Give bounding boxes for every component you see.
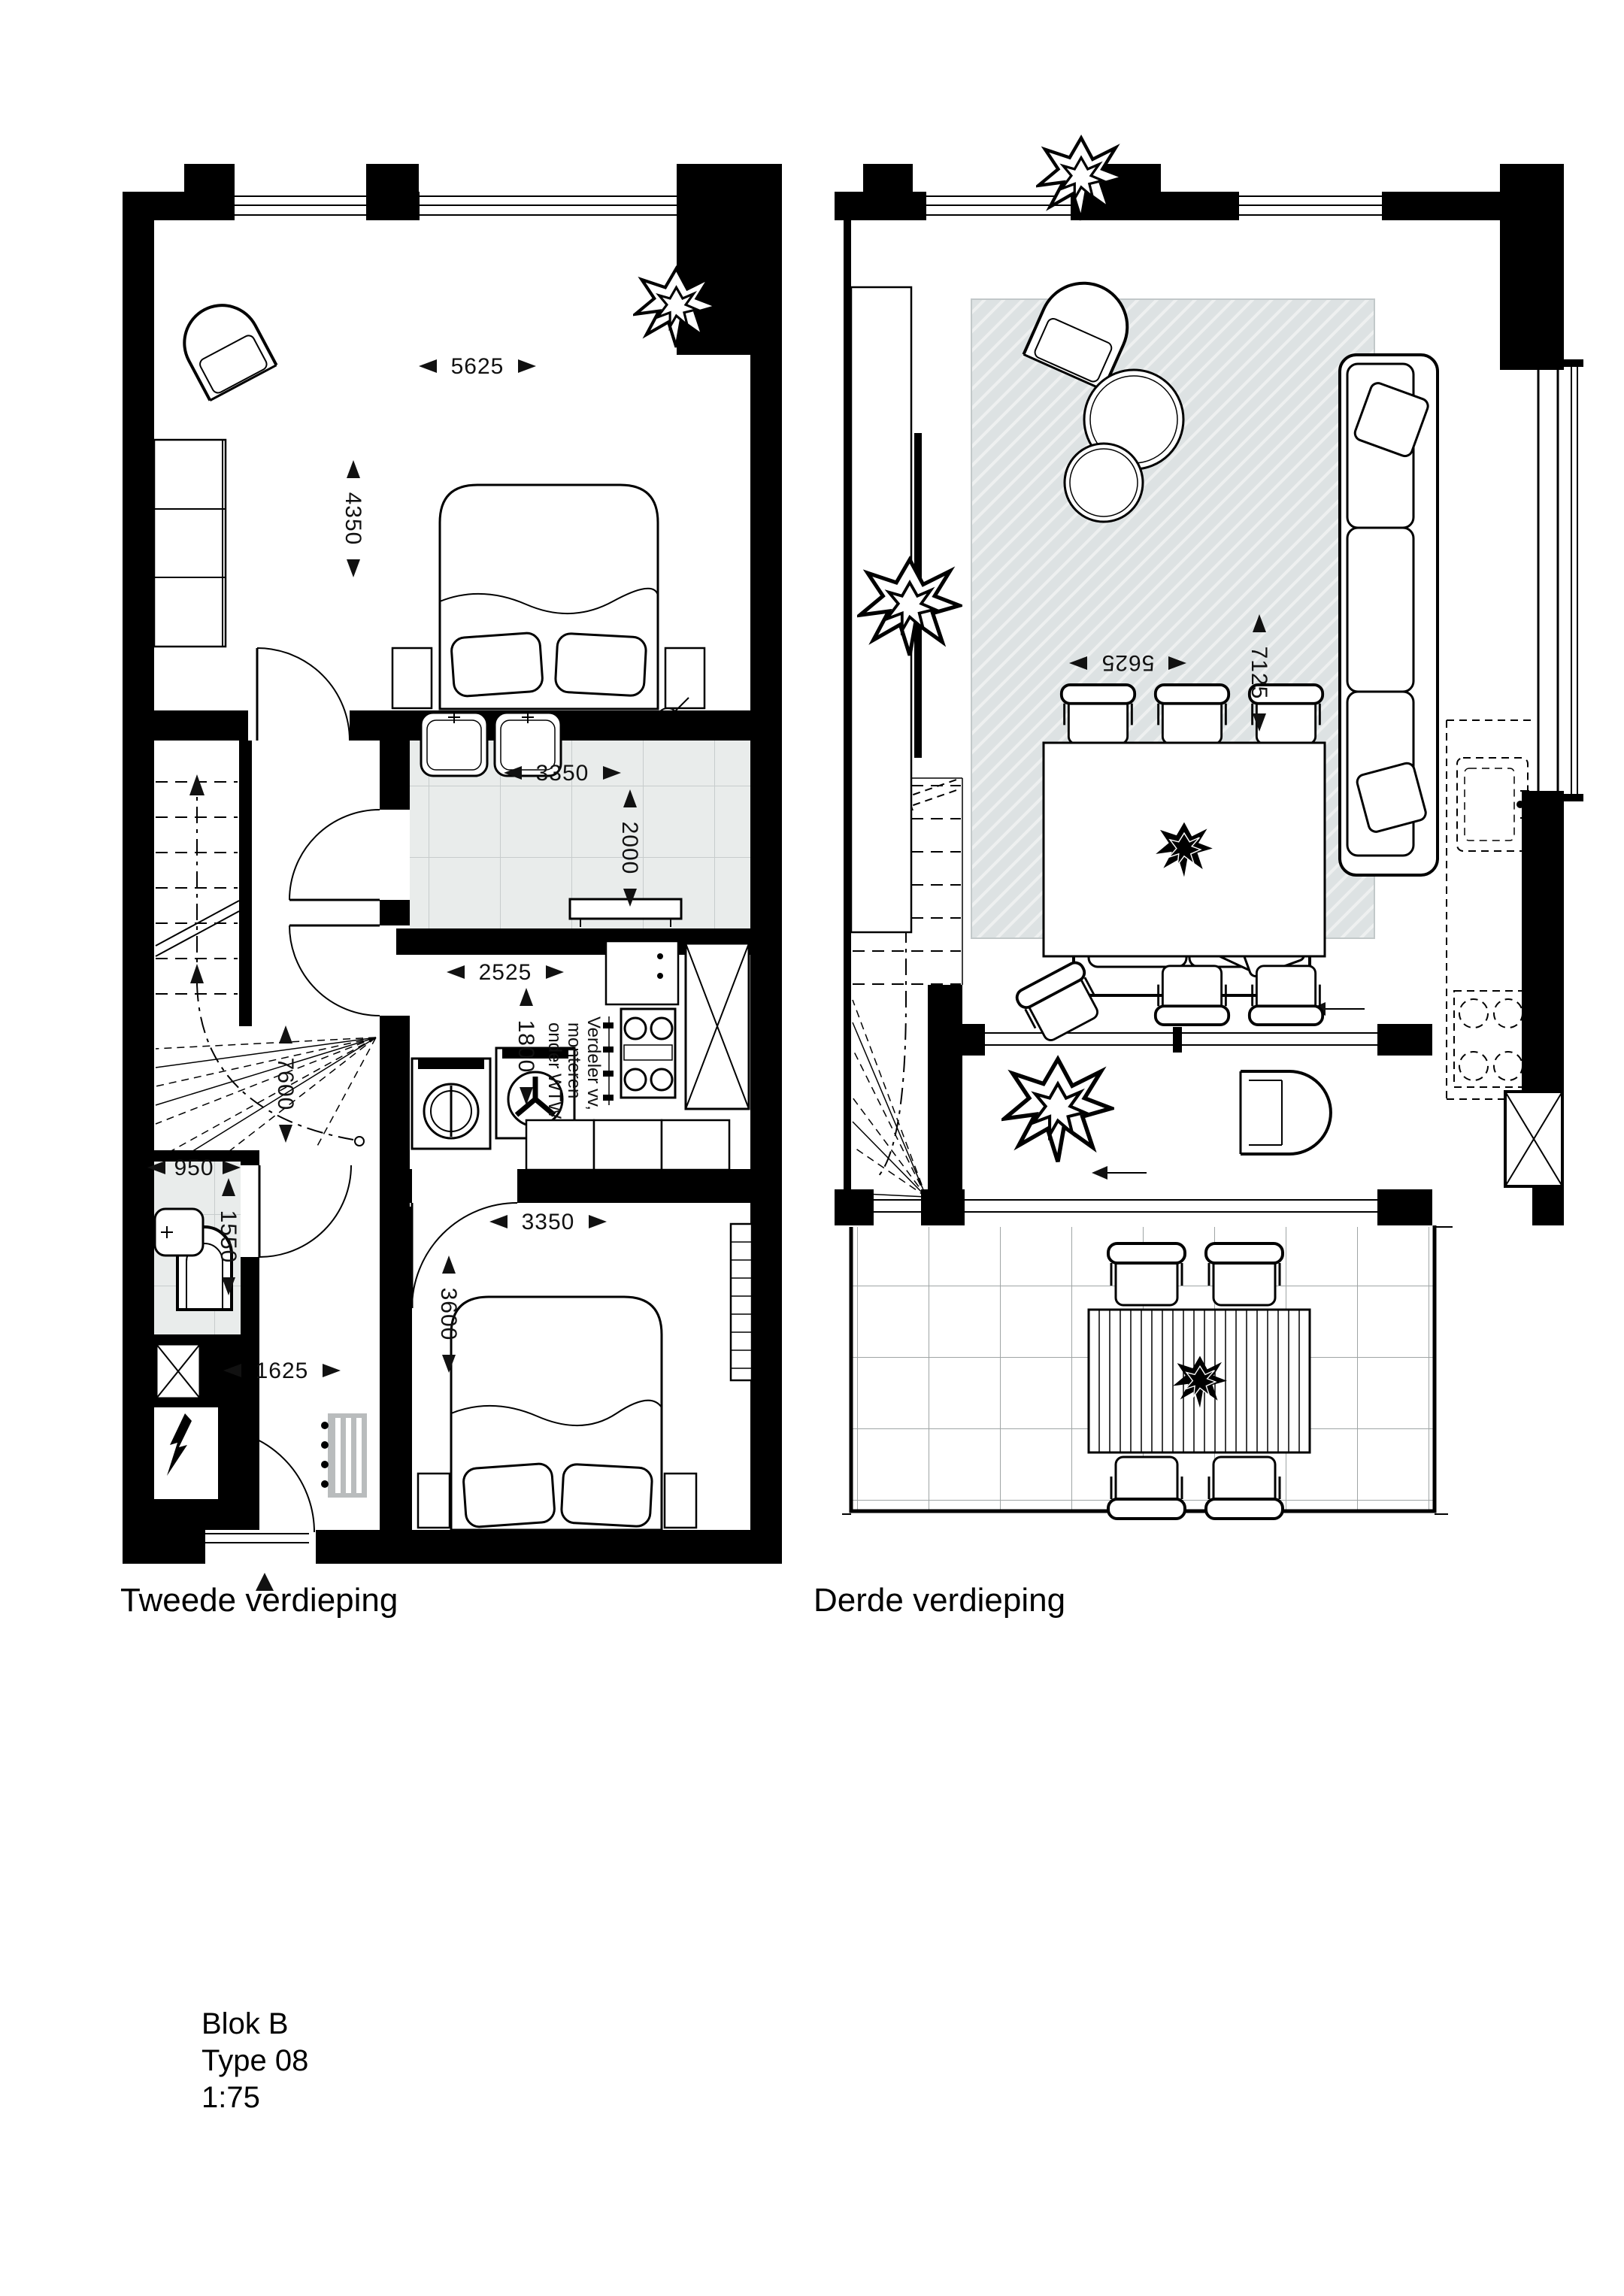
terrace-table bbox=[1089, 1310, 1310, 1452]
tall-cabinet bbox=[606, 941, 678, 1004]
kitchen-sink bbox=[1457, 758, 1529, 851]
svg-text:1625: 1625 bbox=[256, 1359, 309, 1383]
radiator bbox=[321, 1413, 367, 1498]
dining-chair bbox=[1062, 685, 1135, 744]
dining-chair bbox=[1156, 966, 1229, 1025]
kitchen-cooktop bbox=[1454, 991, 1525, 1087]
window bbox=[235, 192, 677, 220]
svg-text:5625: 5625 bbox=[1101, 650, 1155, 675]
floor-label-derde: Derde verdieping bbox=[814, 1582, 1065, 1619]
balcony-chair bbox=[1241, 1071, 1331, 1154]
svg-text:2000: 2000 bbox=[617, 822, 642, 875]
floor-plan-tweede-verdieping: 5625 4350 3350 2000 2525 1800 7600 950 bbox=[123, 164, 782, 1591]
svg-text:7125: 7125 bbox=[1247, 647, 1271, 700]
title-block-scale: 1:75 bbox=[201, 2079, 308, 2116]
svg-text:1800: 1800 bbox=[514, 1020, 538, 1074]
sofa bbox=[1340, 355, 1438, 875]
plant-icon bbox=[860, 559, 959, 655]
kitchen-base-cabinets bbox=[526, 1120, 729, 1170]
shaft bbox=[686, 944, 749, 1109]
shaft bbox=[156, 1344, 200, 1398]
wc-sink bbox=[155, 1209, 203, 1256]
kitchen-counter bbox=[1447, 720, 1532, 1099]
svg-text:7600: 7600 bbox=[273, 1058, 298, 1111]
wall-radiator-ladder bbox=[731, 1224, 752, 1380]
dining-chair bbox=[1250, 966, 1323, 1025]
svg-text:2525: 2525 bbox=[479, 960, 532, 985]
title-block-block: Blok B bbox=[201, 2006, 308, 2043]
washing-machine bbox=[412, 1059, 490, 1149]
electric-meter-closet bbox=[154, 1407, 229, 1499]
floorplan-drawing: 5625 4350 3350 2000 2525 1800 7600 950 bbox=[0, 0, 1624, 2296]
svg-text:monteren: monteren bbox=[564, 1022, 584, 1098]
nightstand bbox=[665, 1474, 696, 1528]
double-bed bbox=[392, 485, 704, 709]
cooktop bbox=[603, 1009, 675, 1105]
nightstand bbox=[665, 648, 704, 708]
title-block-type: Type 08 bbox=[201, 2043, 308, 2079]
svg-text:onder WTW: onder WTW bbox=[544, 1022, 565, 1119]
dim-bedroom1-depth: 4350 bbox=[341, 460, 365, 577]
nightstand bbox=[392, 648, 432, 708]
floorplan-sheet: 5625 4350 3350 2000 2525 1800 7600 950 bbox=[0, 0, 1624, 2296]
svg-text:4350: 4350 bbox=[341, 492, 365, 546]
wardrobe bbox=[154, 440, 226, 647]
svg-text:5625: 5625 bbox=[451, 354, 504, 379]
terrace-chair bbox=[1206, 1457, 1283, 1519]
terrace-chair bbox=[1108, 1243, 1185, 1305]
terrace-chair bbox=[1108, 1457, 1185, 1519]
nightstand bbox=[418, 1474, 450, 1528]
dim-bedroom2-width: 3350 bbox=[489, 1210, 607, 1234]
armchair bbox=[171, 292, 277, 401]
title-block: Blok B Type 08 1:75 bbox=[201, 2006, 308, 2116]
plant-icon bbox=[1004, 1059, 1111, 1162]
dim-stairwell-depth: 7600 bbox=[273, 1025, 298, 1143]
svg-text:3600: 3600 bbox=[436, 1288, 461, 1341]
shaft bbox=[1505, 1092, 1562, 1186]
svg-text:950: 950 bbox=[174, 1156, 214, 1180]
terrace-chair bbox=[1206, 1243, 1283, 1305]
dim-kitchen-width: 2525 bbox=[447, 960, 564, 985]
svg-text:Verdeler vv,: Verdeler vv, bbox=[583, 1016, 604, 1110]
svg-text:3350: 3350 bbox=[536, 761, 589, 786]
floor-label-tweede: Tweede verdieping bbox=[120, 1582, 398, 1619]
svg-text:3350: 3350 bbox=[522, 1210, 575, 1234]
svg-text:1550: 1550 bbox=[216, 1210, 241, 1264]
stairs bbox=[156, 774, 376, 1156]
floor-plan-derde-verdieping: 5625 7125 bbox=[835, 138, 1583, 1519]
dining-chair bbox=[1156, 685, 1229, 744]
dim-bedroom1-width: 5625 bbox=[419, 354, 536, 379]
french-balcony bbox=[1538, 359, 1583, 801]
